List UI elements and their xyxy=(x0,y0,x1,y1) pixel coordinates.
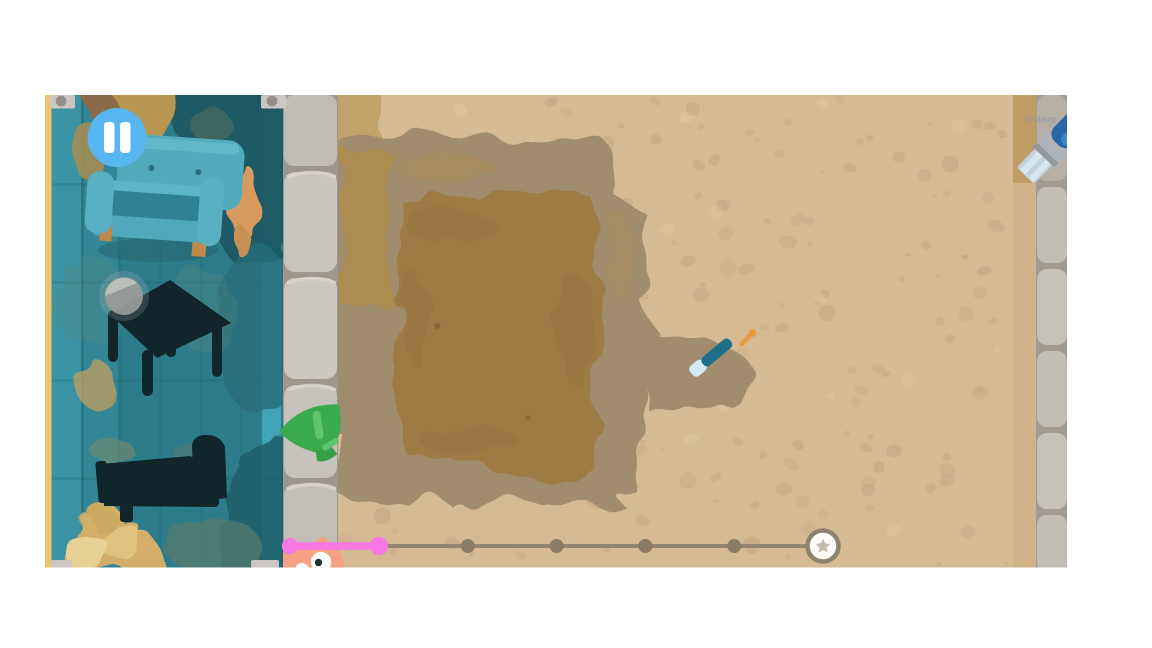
svg-text:Debug: Debug xyxy=(1026,114,1056,125)
